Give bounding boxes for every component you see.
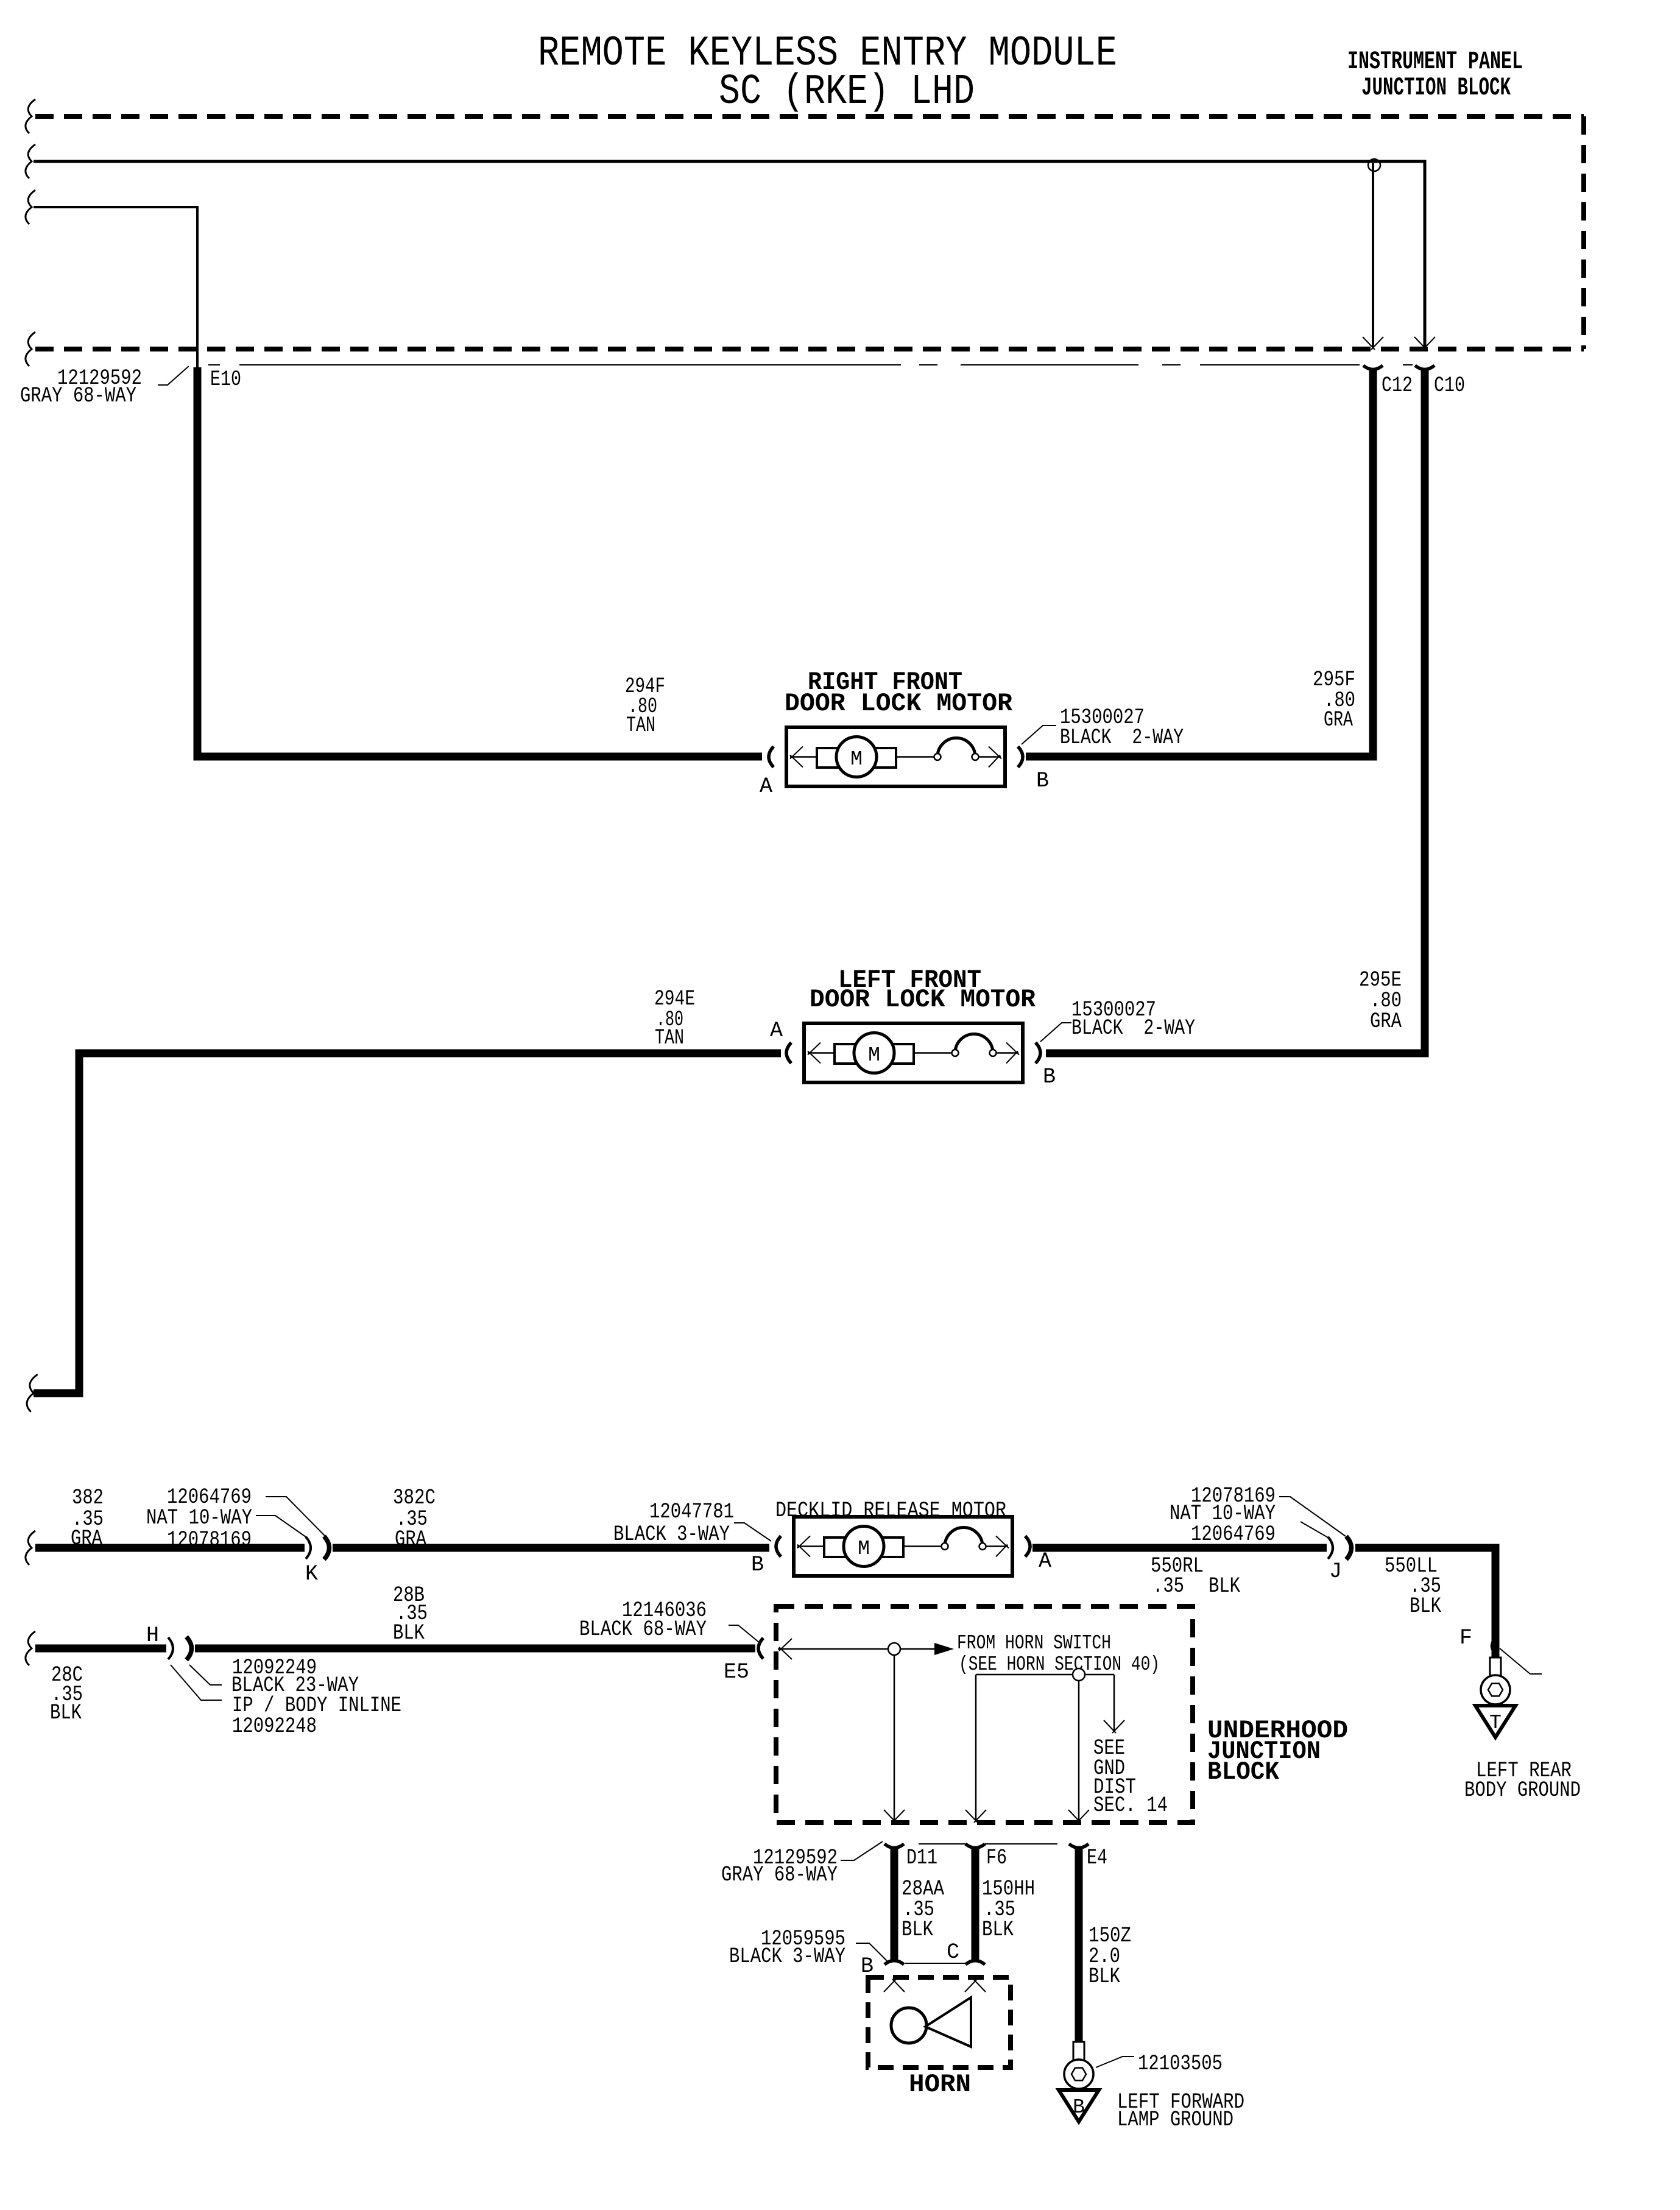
svg-text:LAMP GROUND: LAMP GROUND — [1117, 2108, 1234, 2132]
svg-text:BLACK 2-WAY: BLACK 2-WAY — [1071, 1016, 1195, 1040]
svg-text:SEC. 14: SEC. 14 — [1093, 1793, 1168, 1818]
svg-text:M: M — [850, 748, 863, 771]
svg-text:A: A — [770, 1019, 783, 1043]
svg-text:B: B — [751, 1553, 764, 1577]
svg-text:BLK: BLK — [50, 1701, 82, 1725]
svg-text:BODY GROUND: BODY GROUND — [1464, 1778, 1581, 1802]
svg-text:BLK: BLK — [982, 1918, 1014, 1942]
svg-text:GRA: GRA — [395, 1527, 426, 1552]
svg-text:E4: E4 — [1087, 1846, 1107, 1870]
svg-text:.35: .35 — [1152, 1574, 1184, 1598]
svg-text:BLACK 3-WAY: BLACK 3-WAY — [729, 1944, 845, 1969]
svg-text:(SEE HORN SECTION 40): (SEE HORN SECTION 40) — [959, 1653, 1160, 1676]
svg-text:C10: C10 — [1434, 373, 1465, 398]
svg-text:382C: 382C — [393, 1486, 436, 1510]
svg-text:K: K — [305, 1562, 318, 1586]
svg-text:M: M — [858, 1537, 870, 1560]
svg-text:GRA: GRA — [1370, 1009, 1402, 1034]
svg-text:F6: F6 — [986, 1846, 1007, 1870]
svg-text:12047781: 12047781 — [649, 1500, 734, 1524]
svg-text:E5: E5 — [724, 1660, 749, 1684]
svg-text:J: J — [1329, 1559, 1342, 1584]
svg-text:GRAY 68-WAY: GRAY 68-WAY — [721, 1863, 838, 1887]
svg-text:T: T — [1489, 1712, 1502, 1734]
svg-text:TAN: TAN — [626, 713, 655, 738]
svg-text:12103505: 12103505 — [1138, 2052, 1223, 2076]
svg-text:A: A — [760, 774, 772, 799]
svg-text:E10: E10 — [210, 367, 241, 392]
svg-text:BLACK 2-WAY: BLACK 2-WAY — [1060, 725, 1184, 750]
svg-text:382: 382 — [72, 1486, 104, 1510]
svg-text:BLOCK: BLOCK — [1207, 1757, 1280, 1787]
svg-text:NAT 10-WAY: NAT 10-WAY — [146, 1506, 252, 1530]
svg-text:FROM HORN SWITCH: FROM HORN SWITCH — [957, 1632, 1111, 1654]
svg-text:BLK: BLK — [1410, 1594, 1441, 1619]
svg-text:BLK: BLK — [393, 1621, 425, 1645]
svg-text:B: B — [1073, 2096, 1085, 2119]
svg-text:C: C — [947, 1940, 959, 1965]
svg-text:C12: C12 — [1382, 373, 1413, 398]
svg-text:DECKLID RELEASE MOTOR: DECKLID RELEASE MOTOR — [775, 1499, 1006, 1523]
svg-text:12064769: 12064769 — [1191, 1522, 1276, 1547]
svg-text:GRAY 68-WAY: GRAY 68-WAY — [20, 384, 136, 408]
svg-text:BLACK 68-WAY: BLACK 68-WAY — [579, 1617, 707, 1642]
svg-text:HORN: HORN — [909, 2070, 971, 2099]
svg-text:INSTRUMENT PANEL: INSTRUMENT PANEL — [1347, 47, 1523, 76]
svg-text:H: H — [146, 1623, 159, 1648]
svg-text:JUNCTION BLOCK: JUNCTION BLOCK — [1361, 73, 1511, 102]
svg-text:BLK: BLK — [902, 1918, 933, 1942]
svg-text:BLK: BLK — [1209, 1574, 1240, 1598]
svg-text:GRA: GRA — [1324, 708, 1353, 732]
svg-text:B: B — [1036, 769, 1049, 793]
svg-text:BLACK 3-WAY: BLACK 3-WAY — [613, 1522, 730, 1547]
svg-text:DOOR LOCK MOTOR: DOOR LOCK MOTOR — [785, 689, 1013, 718]
svg-text:B: B — [1043, 1065, 1056, 1089]
svg-text:12092248: 12092248 — [232, 1714, 317, 1739]
svg-text:GRA: GRA — [71, 1527, 102, 1551]
svg-text:TAN: TAN — [655, 1026, 684, 1050]
svg-text:SC (RKE) LHD: SC (RKE) LHD — [719, 68, 975, 116]
svg-text:12078169: 12078169 — [167, 1528, 252, 1552]
svg-text:A: A — [1039, 1549, 1051, 1573]
svg-text:M: M — [868, 1044, 880, 1067]
svg-text:DOOR LOCK MOTOR: DOOR LOCK MOTOR — [810, 985, 1036, 1014]
svg-text:D11: D11 — [906, 1846, 937, 1870]
svg-text:BLK: BLK — [1089, 1965, 1120, 1989]
svg-text:F: F — [1459, 1626, 1472, 1650]
